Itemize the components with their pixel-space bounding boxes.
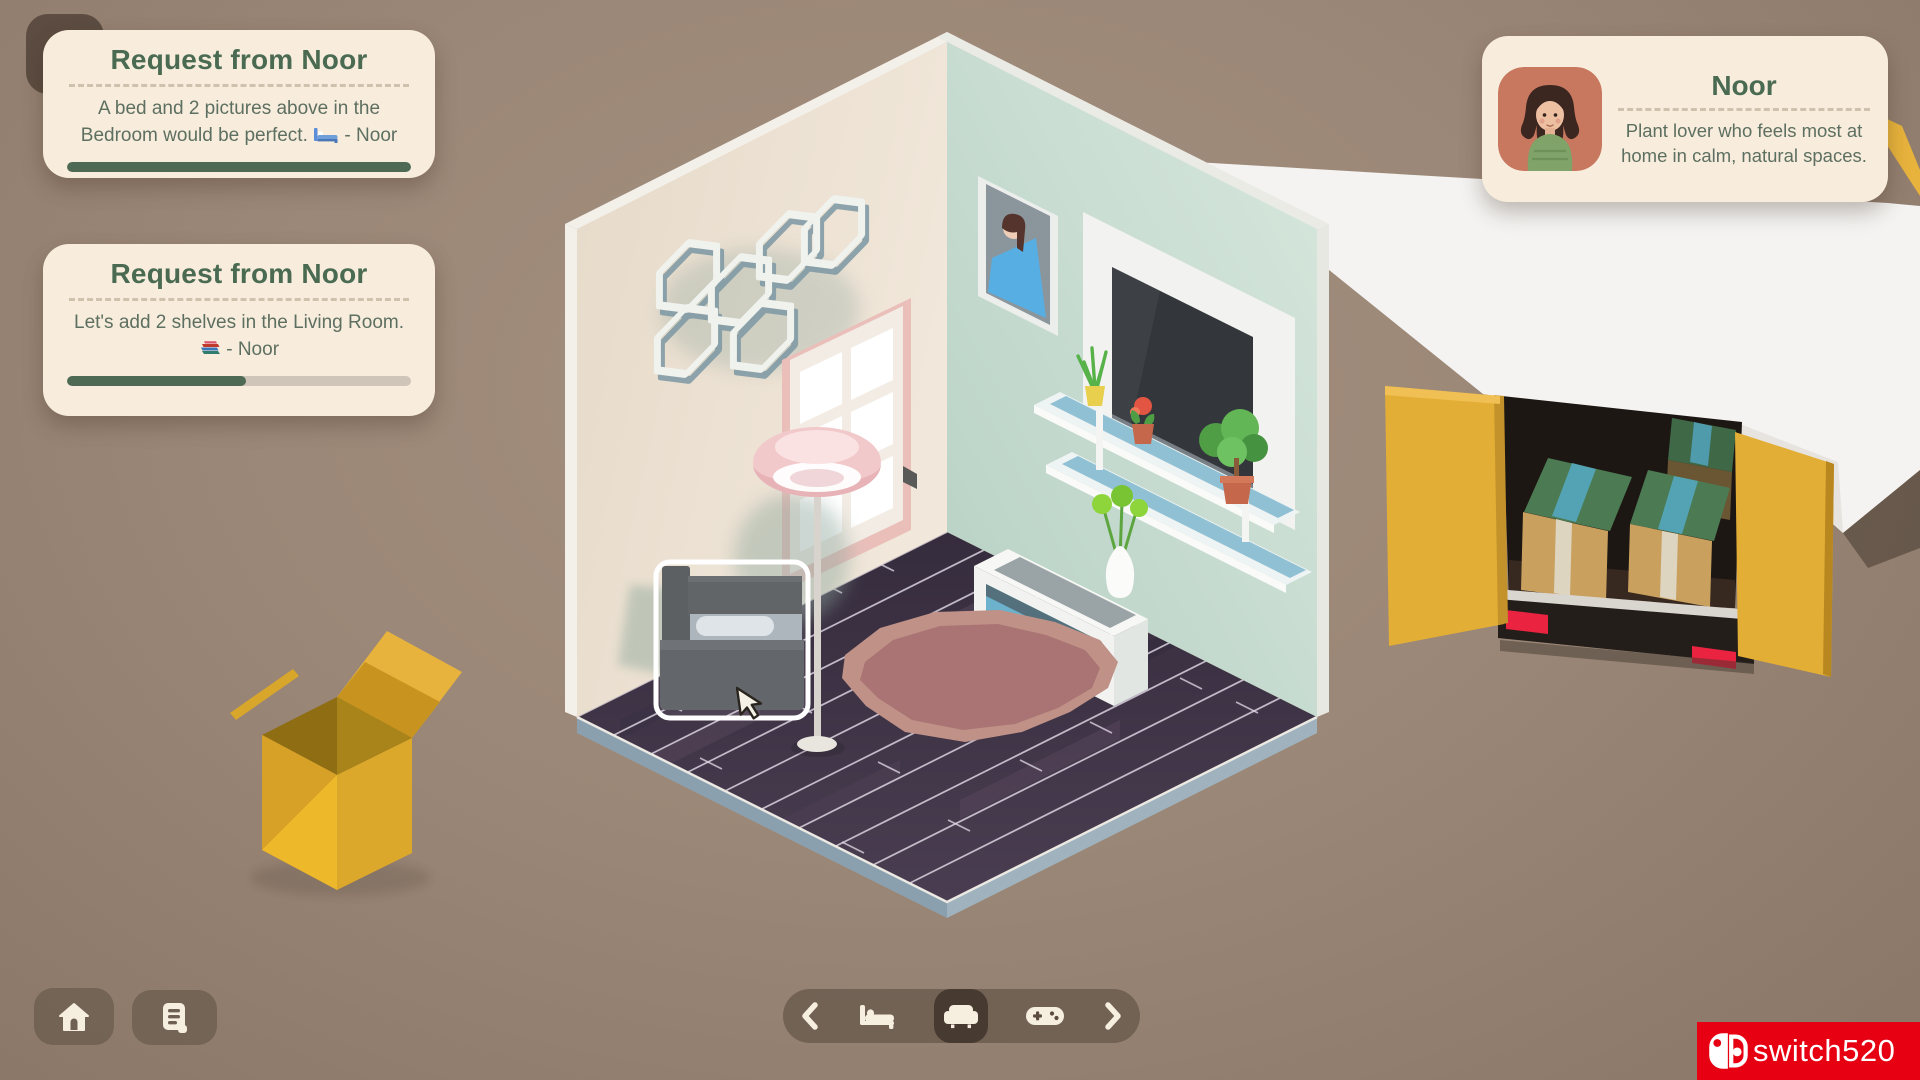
request-card: Request from Noor Let's add 2 shelves in… (43, 244, 435, 416)
cardboard-box[interactable] (230, 631, 462, 896)
truck-door-right (1735, 432, 1834, 677)
avatar (1498, 67, 1602, 171)
profile-description: Plant lover who feels most at home in ca… (1616, 119, 1872, 169)
dashed-divider (1618, 108, 1870, 111)
request-title: Request from Noor (65, 44, 413, 76)
truck-door-left (1385, 386, 1504, 646)
prev-category-button[interactable] (799, 1000, 821, 1032)
watermark-banner: switch520 (1697, 1022, 1920, 1080)
cargo-box1-tape (1554, 519, 1572, 596)
progress-fill (67, 162, 411, 172)
flower-pompom (1092, 494, 1112, 514)
truck-roof-sliver (1885, 118, 1920, 196)
lamp-base (797, 736, 837, 752)
books-emoji-icon (199, 339, 221, 357)
bed-emoji-icon (313, 126, 339, 143)
log-icon (160, 1001, 190, 1035)
wall-left-cap (565, 224, 577, 717)
home-button[interactable] (34, 988, 114, 1045)
category-sofa-button-selected[interactable] (934, 989, 988, 1043)
profile-card: Noor Plant lover who feels most at home … (1482, 36, 1888, 202)
lamp-inner-ring2 (790, 469, 844, 487)
wall-right-cap (1317, 224, 1329, 717)
pot-yellow (1085, 386, 1105, 406)
selection-box[interactable] (656, 562, 808, 718)
sofa-icon (942, 1002, 980, 1030)
pot-terracotta-rim (1220, 476, 1254, 483)
sofa-placement[interactable] (656, 562, 808, 718)
flower-pompom (1111, 485, 1133, 507)
flower-pompom (1130, 499, 1148, 517)
profile-name: Noor (1616, 70, 1872, 102)
progress-track (67, 162, 411, 172)
lamp-pole (814, 488, 821, 742)
chevron-left-icon (799, 1000, 821, 1032)
home-icon (57, 1001, 91, 1033)
request-body: A bed and 2 pictures above in the Bedroo… (65, 96, 413, 150)
dashed-divider (69, 298, 409, 301)
request-card: Request from Noor A bed and 2 pictures a… (43, 30, 435, 178)
shelf-post-left (1096, 408, 1103, 470)
furniture-toolbar (783, 989, 1140, 1043)
lamp-shade-top (775, 430, 859, 464)
cargo-box2-tape (1660, 531, 1678, 600)
progress-fill (67, 376, 246, 386)
dashed-divider (69, 84, 409, 87)
pot-terracotta-small (1132, 424, 1154, 444)
progress-track (67, 376, 411, 386)
switch-logo-icon (1705, 1029, 1749, 1073)
chevron-right-icon (1102, 1000, 1124, 1032)
category-bed-button[interactable] (857, 1002, 897, 1030)
log-button[interactable] (132, 990, 217, 1045)
request-body: Let's add 2 shelves in the Living Room. … (65, 310, 413, 364)
category-gamepad-button[interactable] (1024, 1003, 1066, 1029)
next-category-button[interactable] (1102, 1000, 1124, 1032)
box-flap-left (230, 669, 299, 720)
bed-icon (857, 1002, 897, 1030)
watermark-text: switch520 (1753, 1033, 1895, 1069)
request-title: Request from Noor (65, 258, 413, 290)
gamepad-icon (1024, 1003, 1066, 1029)
tree-foliage (1217, 437, 1247, 467)
